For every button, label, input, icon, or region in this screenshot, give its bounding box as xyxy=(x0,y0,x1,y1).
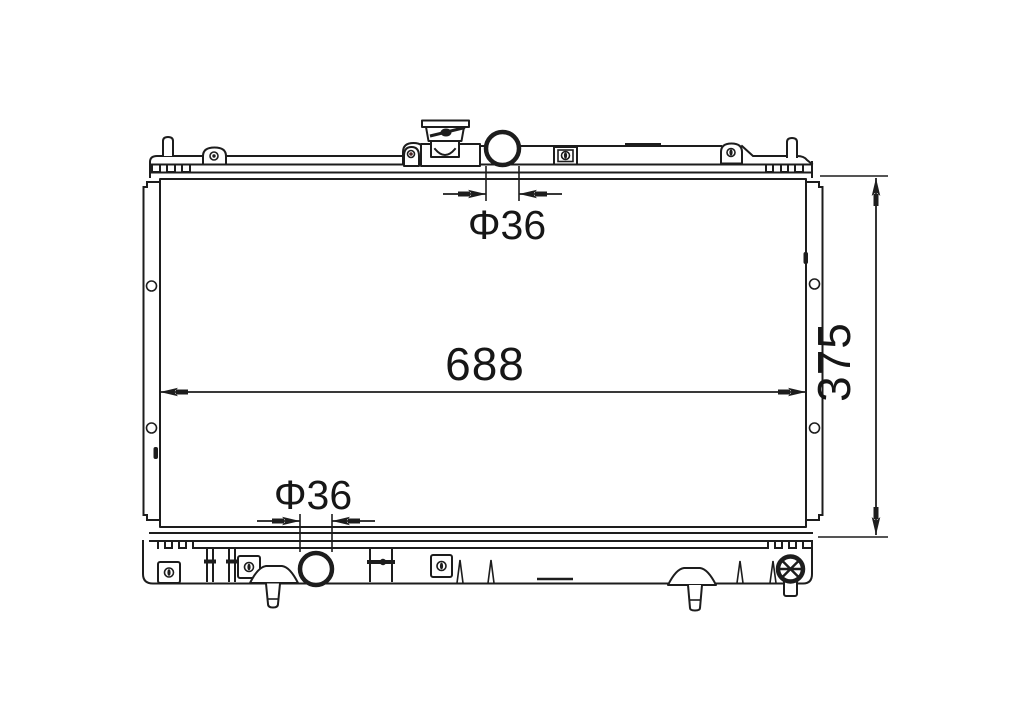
mounting-bracket xyxy=(203,148,226,165)
cap-lever-knob xyxy=(441,129,452,137)
serrated-edge xyxy=(766,165,810,173)
dimension-core-height: 375 xyxy=(808,176,888,537)
mounting-foot xyxy=(668,568,716,611)
radiator-technical-drawing: Φ36 688 375 Φ36 xyxy=(0,0,1009,717)
locating-pin xyxy=(163,137,173,156)
locating-pin xyxy=(787,138,797,158)
spike xyxy=(457,560,463,583)
serrated-edge xyxy=(158,541,200,548)
clip-channel xyxy=(367,548,395,581)
mounting-hole xyxy=(147,281,157,291)
slot xyxy=(804,252,809,264)
slot xyxy=(154,447,159,459)
dimension-label-bottom-pipe: Φ36 xyxy=(274,472,352,518)
mounting-bracket xyxy=(404,147,419,166)
mounting-bracket xyxy=(431,555,452,577)
mounting-hole xyxy=(810,279,820,289)
mounting-foot xyxy=(250,566,298,608)
inlet-pipe-circle xyxy=(486,132,519,165)
clip-channel xyxy=(204,548,238,581)
spike xyxy=(488,560,494,583)
serrated-edge xyxy=(152,165,198,173)
side-plate-left xyxy=(144,182,161,520)
mounting-bracket xyxy=(721,144,742,164)
dimension-label-top-pipe: Φ36 xyxy=(468,202,546,248)
mounting-hole xyxy=(147,423,157,433)
serrated-edge xyxy=(768,541,810,548)
spike xyxy=(737,561,743,583)
cap-top xyxy=(422,121,469,128)
bottom-tank xyxy=(143,533,812,611)
mounting-hole xyxy=(810,423,820,433)
outlet-pipe-circle xyxy=(300,553,332,585)
mounting-bracket xyxy=(158,562,180,583)
mounting-bracket xyxy=(554,147,577,165)
drain-plug xyxy=(778,557,803,597)
dimension-label-core-width: 688 xyxy=(445,338,525,390)
spike xyxy=(770,561,776,583)
dimension-label-core-height: 375 xyxy=(808,322,860,402)
radiator-technical-drawing-page: Φ36 688 375 Φ36 xyxy=(0,0,1009,717)
